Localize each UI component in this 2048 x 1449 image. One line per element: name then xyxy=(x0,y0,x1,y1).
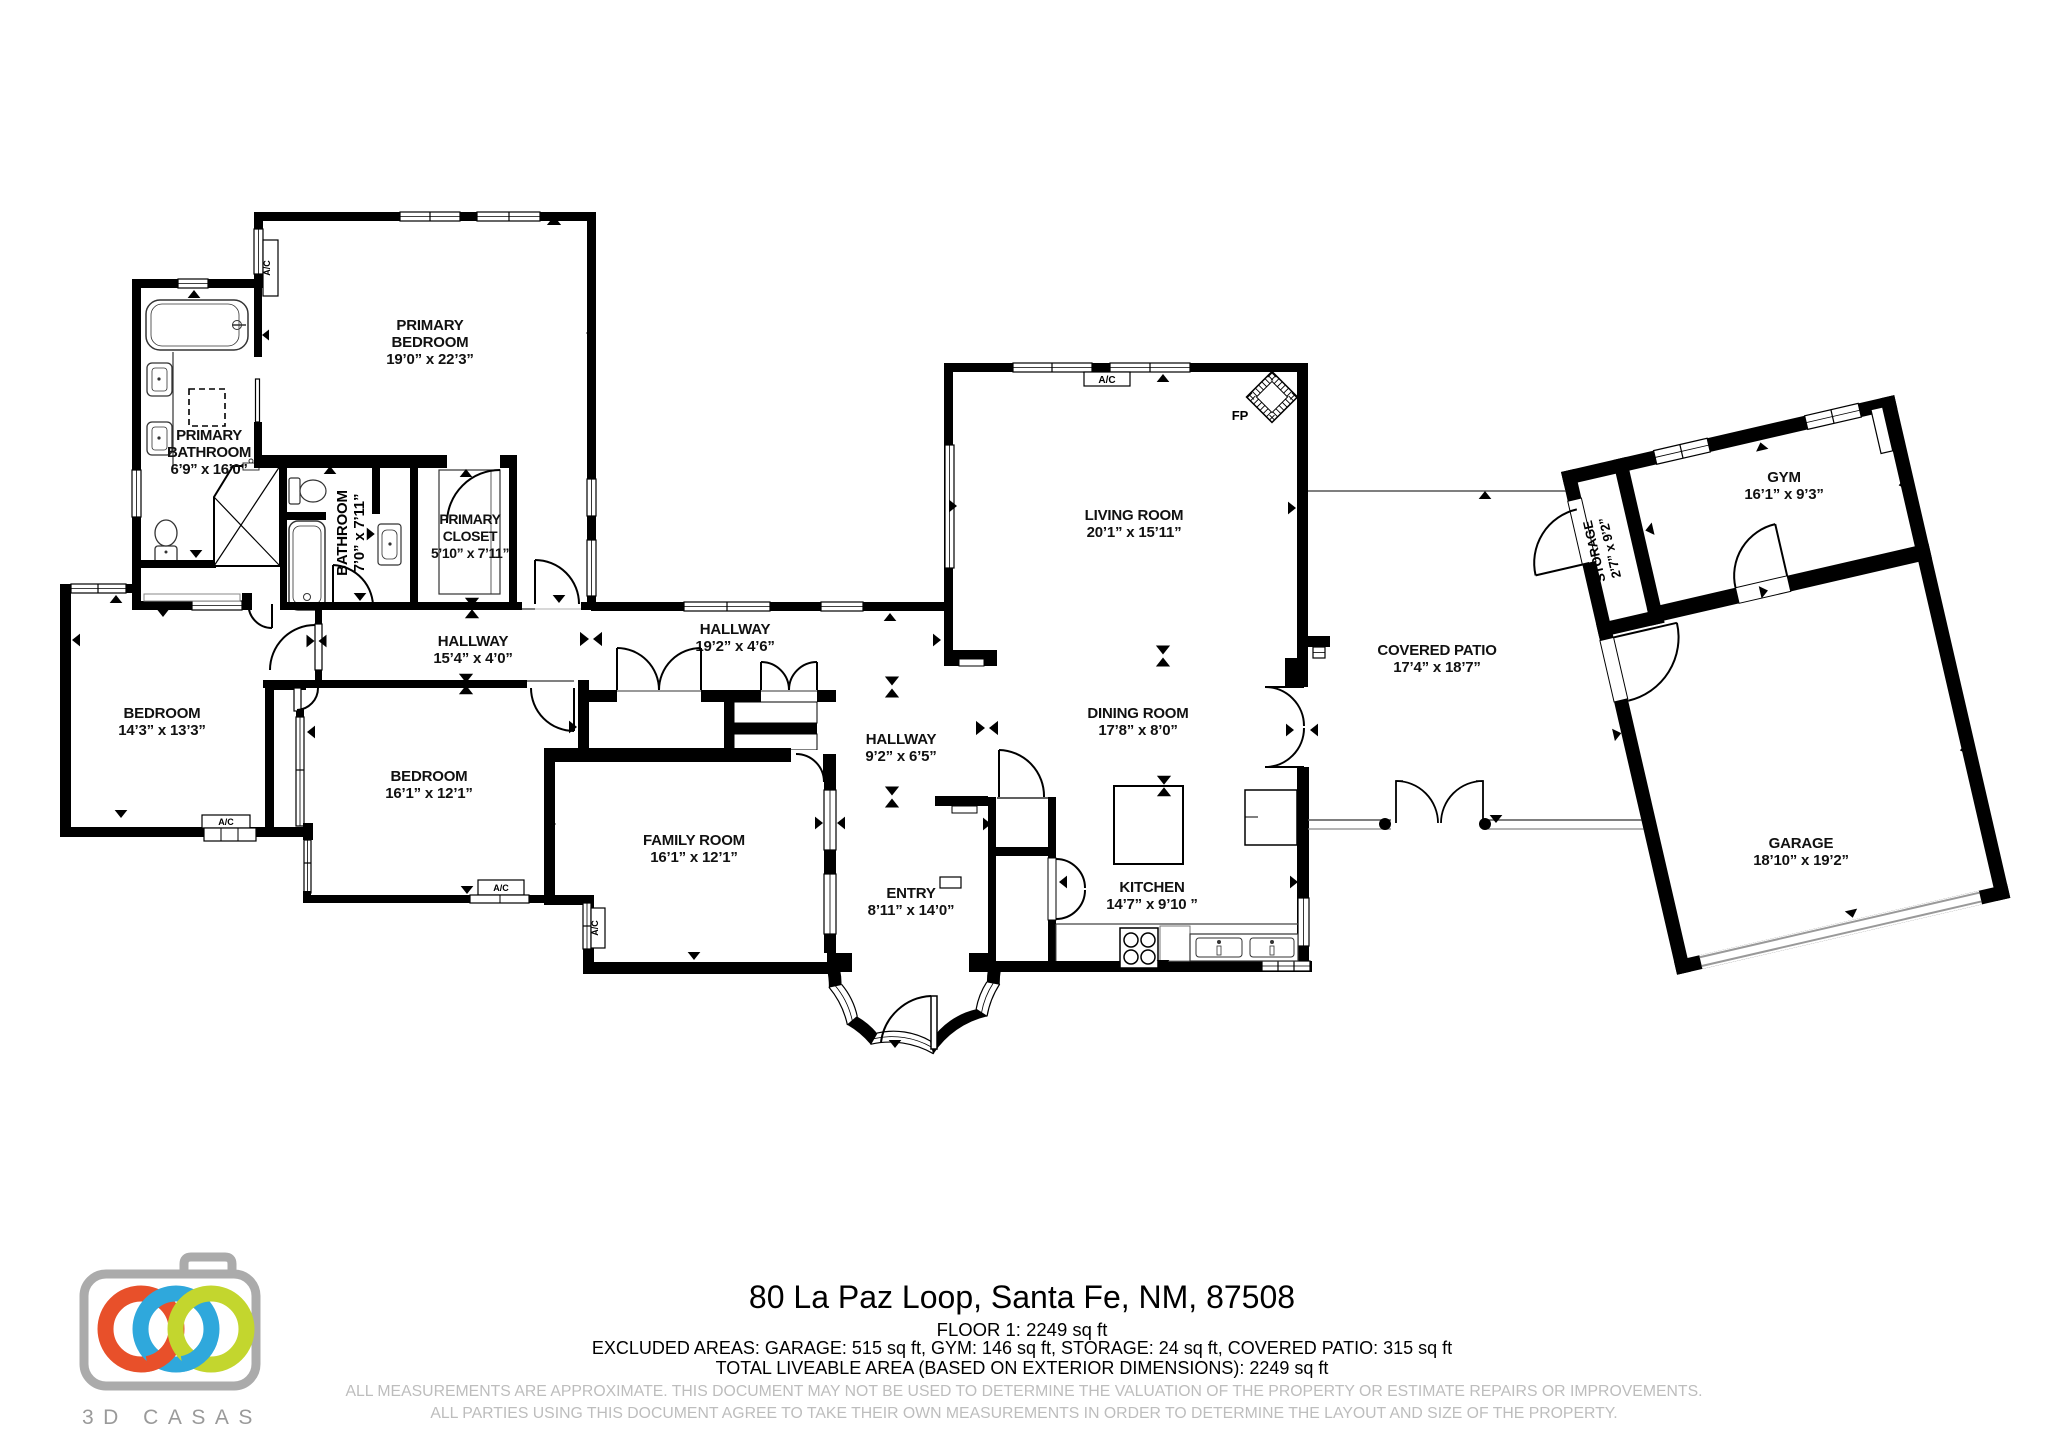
svg-text:8’11” x 14’0”: 8’11” x 14’0” xyxy=(868,902,955,919)
svg-text:A/C: A/C xyxy=(262,260,272,276)
svg-text:ALL PARTIES USING THIS DOCUMEN: ALL PARTIES USING THIS DOCUMENT AGREE TO… xyxy=(430,1405,1617,1422)
svg-text:17’8” x 8’0”: 17’8” x 8’0” xyxy=(1098,722,1177,739)
svg-text:COVERED PATIO: COVERED PATIO xyxy=(1377,642,1497,659)
svg-text:ALL MEASUREMENTS ARE APPROXIMA: ALL MEASUREMENTS ARE APPROXIMATE. THIS D… xyxy=(345,1383,1702,1400)
svg-text:5’10” x 7’11”: 5’10” x 7’11” xyxy=(431,545,509,561)
svg-text:17’4” x 18’7”: 17’4” x 18’7” xyxy=(1393,659,1480,676)
svg-text:HALLWAY: HALLWAY xyxy=(866,731,937,748)
svg-text:16’1” x 12’1”: 16’1” x 12’1” xyxy=(385,785,472,802)
svg-text:BEDROOM: BEDROOM xyxy=(124,705,201,722)
svg-text:HALLWAY: HALLWAY xyxy=(438,633,509,650)
svg-text:14’3” x 13’3”: 14’3” x 13’3” xyxy=(118,722,205,739)
svg-text:80 La Paz Loop, Santa Fe, NM,: 80 La Paz Loop, Santa Fe, NM, 87508 xyxy=(749,1279,1295,1315)
svg-text:LIVING ROOM: LIVING ROOM xyxy=(1085,507,1184,524)
svg-text:FLOOR 1: 2249 sq ft: FLOOR 1: 2249 sq ft xyxy=(937,1319,1108,1340)
svg-text:19’2” x 4’6”: 19’2” x 4’6” xyxy=(695,638,774,655)
svg-text:KITCHEN: KITCHEN xyxy=(1119,879,1184,896)
svg-text:A/C: A/C xyxy=(493,883,509,893)
svg-text:ENTRY: ENTRY xyxy=(886,885,935,902)
svg-text:16’1” x 9’3”: 16’1” x 9’3” xyxy=(1744,486,1823,503)
svg-text:BATHROOM: BATHROOM xyxy=(334,490,351,576)
svg-text:GARAGE: GARAGE xyxy=(1769,835,1834,852)
svg-text:A/C: A/C xyxy=(1098,375,1115,386)
svg-text:TOTAL LIVEABLE AREA (BASED ON: TOTAL LIVEABLE AREA (BASED ON EXTERIOR D… xyxy=(716,1358,1329,1378)
svg-text:EXCLUDED AREAS: GARAGE: 515 sq: EXCLUDED AREAS: GARAGE: 515 sq ft, GYM: … xyxy=(592,1338,1452,1358)
svg-text:18’10” x 19’2”: 18’10” x 19’2” xyxy=(1753,852,1849,869)
svg-text:19’0” x 22’3”: 19’0” x 22’3” xyxy=(386,351,473,368)
svg-text:GYM: GYM xyxy=(1767,469,1801,486)
svg-text:PRIMARY: PRIMARY xyxy=(439,511,501,527)
svg-text:DINING ROOM: DINING ROOM xyxy=(1087,705,1188,722)
svg-text:FP: FP xyxy=(1232,408,1249,423)
svg-text:9’2” x 6’5”: 9’2” x 6’5” xyxy=(865,748,936,765)
svg-text:CLOSET: CLOSET xyxy=(443,528,498,544)
svg-text:FAMILY ROOM: FAMILY ROOM xyxy=(643,832,745,849)
svg-text:15’4” x 4’0”: 15’4” x 4’0” xyxy=(433,650,512,667)
svg-text:PRIMARY: PRIMARY xyxy=(176,427,242,444)
svg-text:16’1” x 12’1”: 16’1” x 12’1” xyxy=(650,849,737,866)
svg-text:A/C: A/C xyxy=(218,817,234,827)
svg-text:HALLWAY: HALLWAY xyxy=(700,621,771,638)
svg-text:A/C: A/C xyxy=(590,920,600,936)
svg-text:6’9” x 16’0”: 6’9” x 16’0” xyxy=(171,461,248,478)
svg-text:3D CASAS: 3D CASAS xyxy=(82,1406,262,1429)
svg-text:BEDROOM: BEDROOM xyxy=(391,768,468,785)
svg-text:BATHROOM: BATHROOM xyxy=(167,444,251,461)
svg-text:20’1” x 15’11”: 20’1” x 15’11” xyxy=(1087,524,1182,541)
svg-text:14’7” x 9’10 ”: 14’7” x 9’10 ” xyxy=(1106,896,1197,913)
svg-text:7’0” x 7’11”: 7’0” x 7’11” xyxy=(351,494,368,573)
svg-text:PRIMARY: PRIMARY xyxy=(396,317,463,334)
svg-text:BEDROOM: BEDROOM xyxy=(392,334,469,351)
